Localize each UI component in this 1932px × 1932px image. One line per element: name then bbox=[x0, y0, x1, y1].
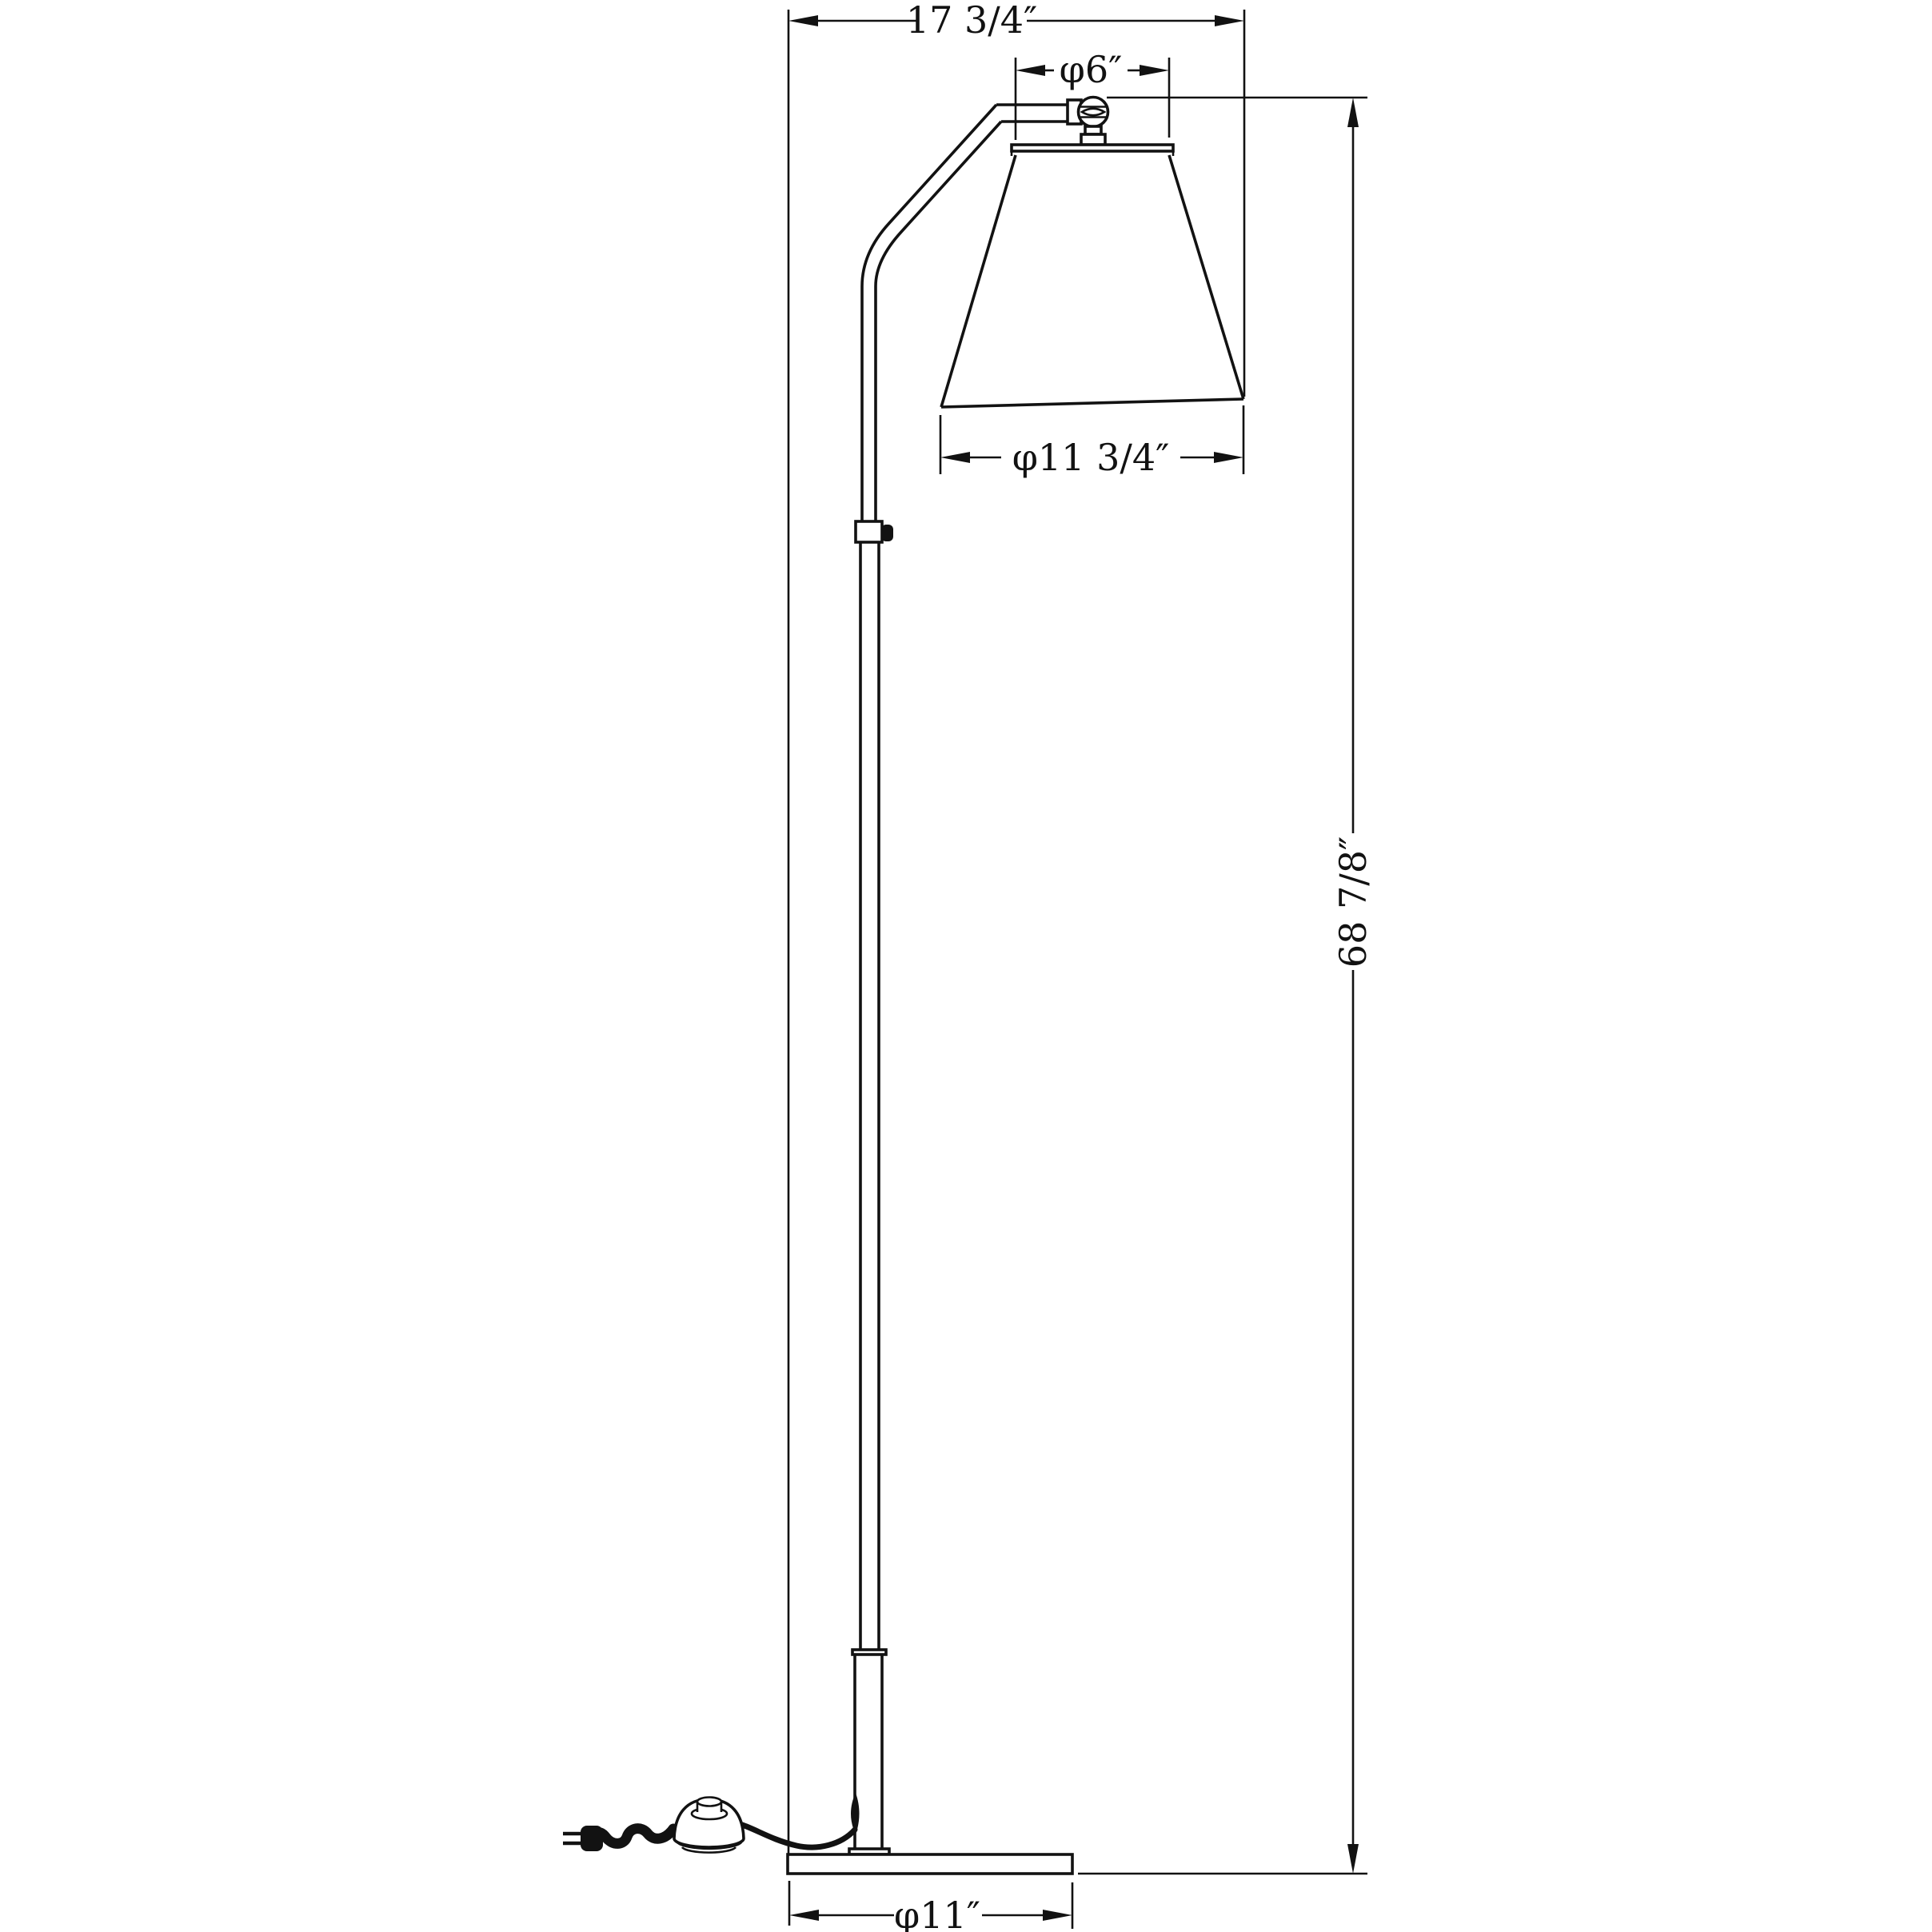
shade-top-rim bbox=[1012, 145, 1173, 151]
switch-button-top bbox=[697, 1798, 721, 1806]
foot-switch bbox=[674, 1798, 744, 1853]
lamp-base bbox=[788, 1854, 1072, 1874]
arrow-right-icon bbox=[1214, 452, 1243, 463]
overall-width-label: 17 3/4″ bbox=[906, 0, 1037, 42]
dimension-shade-bottom-diameter: φ11 3/4″ bbox=[940, 436, 1243, 479]
lamp-pole bbox=[849, 521, 893, 1854]
arrow-down-icon bbox=[1347, 1844, 1359, 1874]
overall-height-label: 68 7/8″ bbox=[1331, 836, 1375, 968]
power-cord bbox=[742, 1825, 855, 1847]
shade-bottom-edge bbox=[941, 399, 1243, 407]
drawing-canvas: 17 3/4″ φ6″ φ11 3/4″ 68 7/8″ φ11″ bbox=[0, 0, 1932, 1932]
base-diameter-label: φ11″ bbox=[894, 1894, 980, 1932]
dimension-shade-top-diameter: φ6″ bbox=[1016, 48, 1169, 91]
base-plate bbox=[788, 1854, 1072, 1874]
adjustment-collar bbox=[856, 521, 882, 542]
arm-inner-line bbox=[876, 122, 1001, 522]
column-top-flange bbox=[852, 1650, 886, 1655]
arrow-right-icon bbox=[1043, 1910, 1072, 1921]
dimension-overall-width: 17 3/4″ bbox=[788, 0, 1244, 42]
arm-outer-line bbox=[862, 105, 996, 522]
swivel-knob bbox=[1079, 98, 1108, 146]
cord-knot bbox=[594, 1829, 673, 1844]
arrow-up-icon bbox=[1347, 98, 1359, 127]
shade-top-diameter-label: φ6″ bbox=[1060, 48, 1123, 91]
dimension-base-diameter: φ11″ bbox=[789, 1894, 1072, 1932]
arrow-left-icon bbox=[1016, 65, 1045, 76]
arrow-right-icon bbox=[1215, 15, 1244, 26]
arrow-right-icon bbox=[1140, 65, 1169, 76]
lamp-shade bbox=[941, 145, 1243, 407]
lamp-technical-drawing: 17 3/4″ φ6″ φ11 3/4″ 68 7/8″ φ11″ bbox=[0, 0, 1932, 1932]
adjustment-knob bbox=[881, 525, 893, 541]
shade-neck-lower bbox=[1081, 134, 1105, 145]
shade-bottom-diameter-label: φ11 3/4″ bbox=[1012, 436, 1170, 479]
arrow-left-icon bbox=[789, 1910, 819, 1921]
arrow-left-icon bbox=[940, 452, 970, 463]
power-plug bbox=[581, 1826, 603, 1851]
shade-side-left bbox=[941, 155, 1016, 407]
dimension-overall-height: 68 7/8″ bbox=[1331, 98, 1375, 1874]
arrow-left-icon bbox=[788, 15, 818, 26]
shade-side-right bbox=[1169, 155, 1243, 399]
